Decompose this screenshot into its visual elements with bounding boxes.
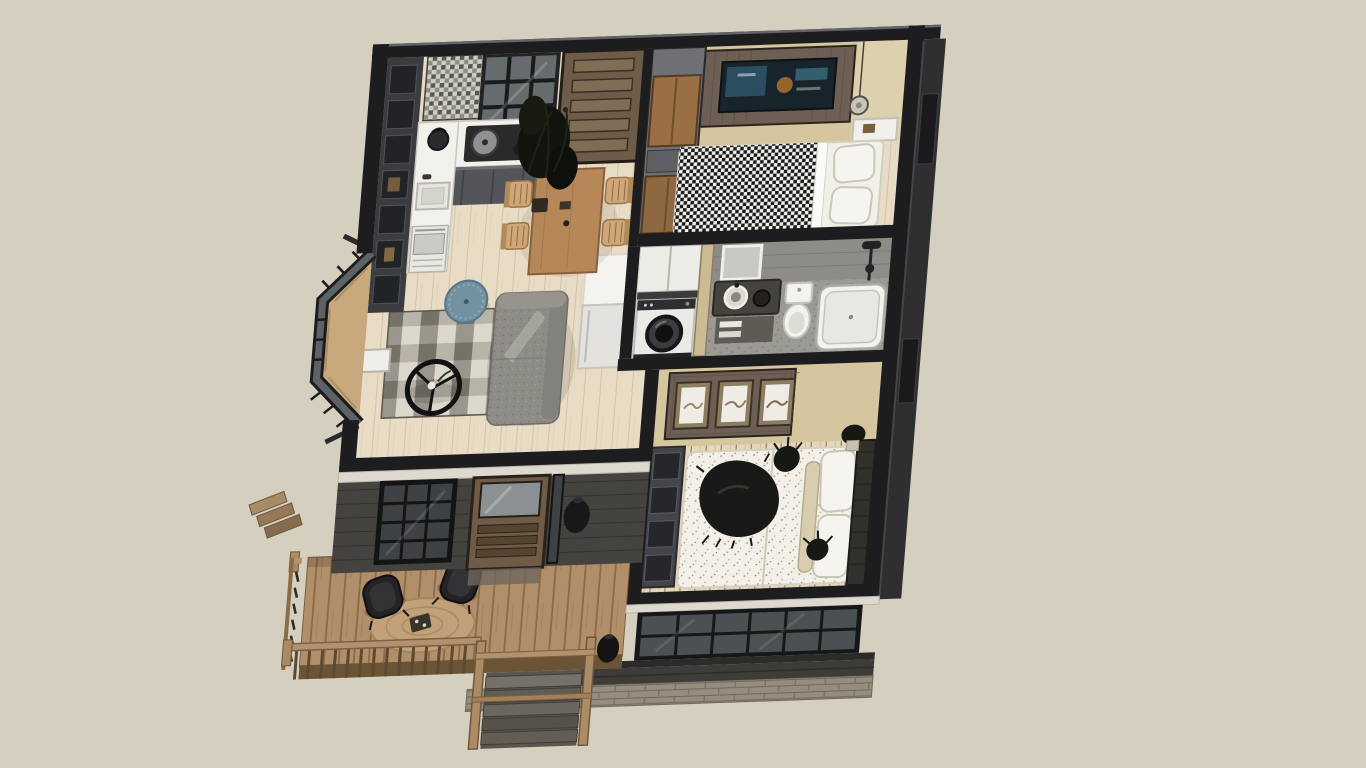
faucet xyxy=(422,174,431,179)
bathroom-mirror xyxy=(721,245,762,279)
dining-chair xyxy=(605,177,634,204)
pillow xyxy=(834,143,874,183)
washer xyxy=(633,299,696,360)
vanity xyxy=(710,280,781,344)
bedroom-bottom xyxy=(639,424,877,593)
laundry-cabinets xyxy=(636,244,702,300)
oven xyxy=(409,225,449,272)
dining-chair xyxy=(504,181,533,208)
bathtub xyxy=(815,284,886,350)
floorplan-render xyxy=(0,0,1366,768)
side-steps xyxy=(249,488,302,541)
towel-shelf xyxy=(714,316,774,344)
doormat xyxy=(467,567,540,586)
main-stairs xyxy=(468,637,596,749)
bw-blanket xyxy=(673,143,818,234)
pillow xyxy=(829,187,874,224)
tv-screen xyxy=(719,58,837,112)
pillow xyxy=(820,450,856,513)
dining-chair xyxy=(500,223,529,250)
south-window xyxy=(373,478,458,565)
dining-chair xyxy=(601,219,630,246)
vessel-sink-dark xyxy=(753,290,770,307)
bed-top xyxy=(673,140,884,233)
house-group xyxy=(229,24,947,757)
bed-bottom xyxy=(677,434,861,588)
front-door xyxy=(467,475,564,570)
gallery-frames xyxy=(673,379,795,429)
kitchen-tile-floor xyxy=(423,55,484,121)
